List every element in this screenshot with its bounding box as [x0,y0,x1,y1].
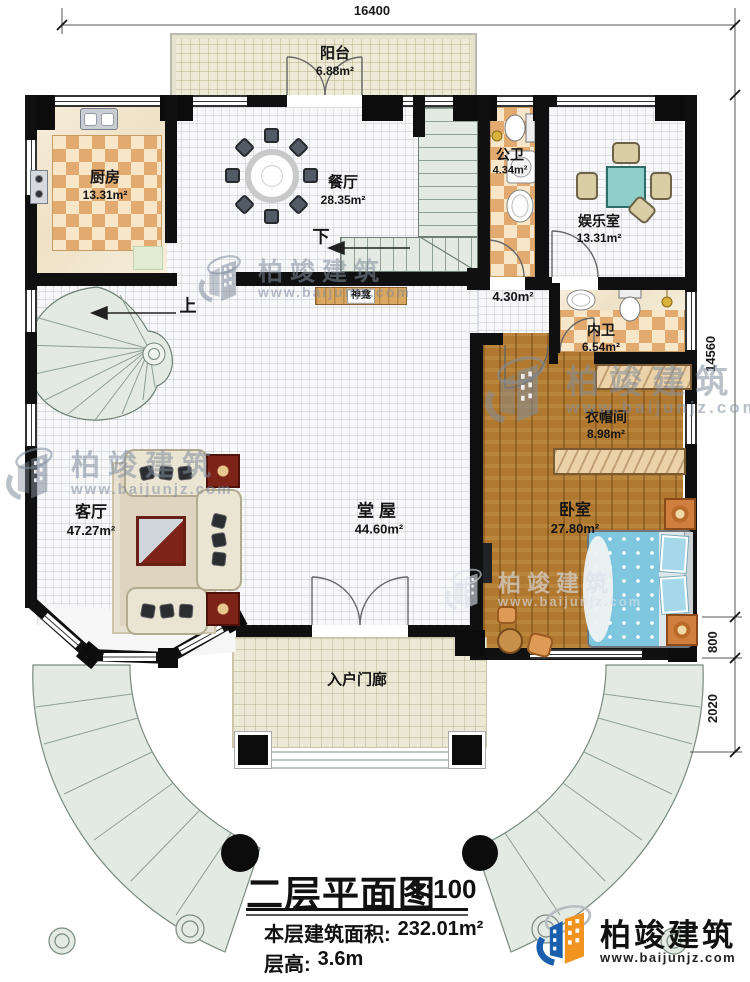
wall-bath-west [478,95,490,290]
side-table-icon [206,592,240,626]
room-label-corridor: 4.30m² [492,289,533,305]
window [25,290,37,332]
wall-stair [413,95,425,137]
wall-ensuite-west [549,283,560,353]
wall-cloakroom [483,333,503,345]
window [557,95,655,107]
room-label-entertainment: 娱乐室13.31m² [577,213,622,246]
dining-table-icon [245,149,299,203]
porch-column [452,735,482,765]
wall-bath-east [535,95,549,290]
stairs-down-label: 下 [313,226,330,247]
room-label-bedroom: 卧室27.80m² [551,501,599,537]
room-label-public-bath: 公卫4.34m² [493,146,528,177]
window [685,292,697,350]
pillow-icon [660,535,688,573]
wardrobe-icon [553,448,686,475]
brand-logo-icon [536,898,600,974]
room-label-porch: 入户门廊 [327,672,387,691]
sofa-icon [124,449,208,497]
window [685,404,697,444]
wall-hall-south [236,625,312,637]
wall-kitchen-east [165,95,177,243]
title-rule [246,908,468,911]
window [403,95,453,107]
chair-icon [303,168,318,183]
room-label-kitchen: 厨房13.31m² [83,169,128,203]
floor-plan: 神龛 阳台6.88m² 厨房13.31m² 餐厅28.35m² 公卫4.34m²… [0,0,750,982]
wall-hall-east [467,268,485,290]
dim-top: 16400 [340,3,404,18]
chair-icon [612,142,640,164]
room-label-dining: 餐厅28.35m² [321,174,366,208]
side-table-icon [206,454,240,488]
column [455,630,485,656]
chair-icon [264,128,279,143]
room-label-balcony: 阳台6.88m² [316,45,354,79]
wall-hall-east [470,333,483,648]
title-rule [246,914,468,916]
bed-blanket-fold [583,536,613,642]
stairs-up-label: 上 [180,295,197,316]
wardrobe-icon [595,364,692,390]
column-dot [462,835,498,871]
stair-landing-line [420,237,476,271]
room-label-hall: 堂屋44.60m² [355,500,403,538]
room-label-living: 客厅47.27m² [67,503,115,539]
round-table-icon [497,628,523,654]
dim-right-porch: 2020 [705,694,720,723]
sofa-icon [126,587,208,635]
dim-right-step: 800 [705,631,720,653]
column [453,95,497,121]
shrine-label: 神龛 [347,289,375,304]
window [193,95,247,107]
tv-icon [483,543,492,583]
room-label-ensuite-bath: 内卫6.54m² [582,322,620,355]
wall-ensuite-south [549,352,558,364]
floor-height-line: 层高:3.6m [264,948,363,977]
dim-right-main: 14560 [703,336,718,372]
brand-website: www.baijunjz.com [600,950,736,965]
stove-icon [30,170,48,204]
sofa-icon [196,489,242,591]
brand-name: 柏竣建筑 [600,910,736,955]
window [55,95,160,107]
ensuite-bath-fixtures [567,289,672,321]
stairs-down-arrow [329,242,410,254]
chair-icon [264,209,279,224]
chair-icon [225,168,240,183]
wall-corridor-south [598,277,697,290]
coffee-table-icon [136,516,186,566]
wall-kitchen-south [25,273,177,286]
wall-dining-south [236,272,483,286]
window [25,404,37,446]
pillow-icon [660,576,688,614]
spiral-stair-icon [25,287,172,420]
floor-area-line: 本层建筑面积:232.01m² [264,918,483,947]
room-label-cloakroom: 衣帽间8.98m² [585,409,627,442]
plan-scale: 1:100 [410,874,477,905]
balcony-door-opening [287,95,362,107]
pouf-icon [497,606,517,624]
kitchen-sink-icon [80,108,118,130]
chair-icon [650,172,672,200]
nightstand-icon [666,614,698,646]
nightstand-icon [664,498,696,530]
porch-column [238,735,268,765]
column [362,95,403,121]
chair-icon [576,172,598,200]
